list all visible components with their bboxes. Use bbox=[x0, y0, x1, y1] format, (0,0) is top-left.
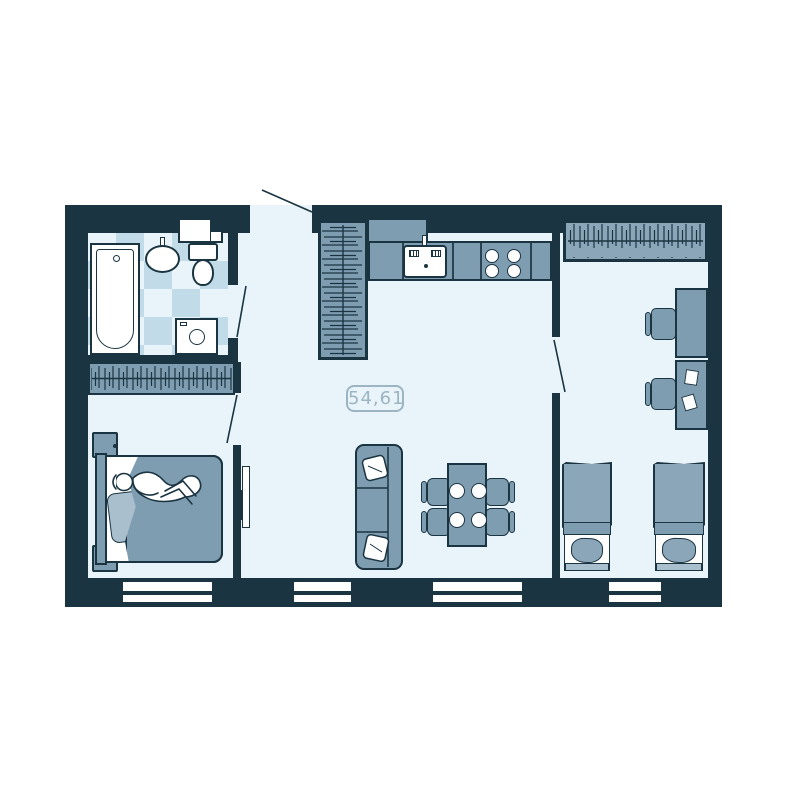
bathroom-wall bbox=[228, 233, 238, 285]
kids-room-wall bbox=[552, 393, 560, 578]
sink-tap bbox=[431, 250, 441, 257]
kitchen-counter bbox=[368, 241, 552, 281]
kids-room-wall bbox=[552, 233, 560, 337]
bed-pillow bbox=[571, 537, 604, 563]
desk-chair bbox=[645, 308, 676, 340]
wall-shelf bbox=[211, 230, 223, 243]
bathtub-icon bbox=[90, 243, 140, 355]
paper-icon bbox=[684, 369, 699, 386]
bathtub-drain bbox=[113, 255, 120, 262]
blanket-fold bbox=[654, 522, 704, 535]
apartment-floorplan: 54,61 bbox=[65, 205, 722, 607]
sink-tap bbox=[409, 250, 419, 257]
hall-tall-wardrobe bbox=[318, 220, 368, 360]
toilet-icon bbox=[192, 259, 214, 286]
paper-icon bbox=[681, 393, 698, 411]
single-bed bbox=[653, 462, 705, 573]
dining-table bbox=[447, 463, 487, 547]
washing-machine-icon bbox=[175, 318, 218, 355]
floorplan-canvas: 54,61 bbox=[0, 0, 800, 800]
window bbox=[608, 581, 662, 603]
bed-pillow bbox=[662, 537, 697, 563]
bed-footboard bbox=[656, 563, 702, 571]
stove-burner bbox=[507, 264, 521, 278]
window bbox=[122, 581, 213, 603]
bathtub-basin bbox=[96, 249, 134, 349]
wall-tv-icon bbox=[242, 466, 250, 528]
dining-chair bbox=[485, 478, 515, 506]
single-bed bbox=[562, 462, 612, 573]
plate-icon bbox=[471, 512, 487, 528]
stove-burner bbox=[507, 249, 521, 263]
bathroom-wall bbox=[88, 355, 238, 362]
plate-icon bbox=[449, 512, 465, 528]
bed-footboard bbox=[565, 563, 609, 571]
counter-divider bbox=[452, 243, 454, 279]
wash-basin-icon bbox=[145, 245, 180, 273]
stove-burner bbox=[485, 264, 499, 278]
window bbox=[432, 581, 523, 603]
washer-control bbox=[180, 322, 187, 326]
area-label: 54,61 bbox=[346, 385, 404, 412]
sleeping-person-icon bbox=[103, 456, 219, 526]
kitchen-upper-cabinet bbox=[367, 218, 428, 243]
sink-drain bbox=[424, 264, 428, 268]
kitchen-sink-icon bbox=[403, 245, 447, 278]
plate-icon bbox=[449, 483, 465, 499]
desk bbox=[675, 288, 708, 358]
counter-divider bbox=[530, 243, 532, 279]
bed-blanket bbox=[562, 462, 612, 528]
stove-burner bbox=[485, 249, 499, 263]
dining-chair bbox=[485, 508, 515, 536]
kids-wardrobe bbox=[563, 220, 708, 262]
counter-divider bbox=[480, 243, 482, 279]
washer-drum bbox=[189, 329, 205, 345]
bedroom-wardrobe bbox=[88, 362, 235, 395]
window bbox=[293, 581, 352, 603]
entrance-opening bbox=[250, 205, 312, 233]
desk-with-papers bbox=[675, 360, 708, 430]
double-bed bbox=[95, 450, 225, 568]
plate-icon bbox=[471, 483, 487, 499]
wall-shelf bbox=[178, 218, 212, 243]
bed-blanket bbox=[653, 462, 705, 528]
desk-chair bbox=[645, 378, 676, 410]
blanket-fold bbox=[563, 522, 611, 535]
sofa bbox=[355, 444, 403, 570]
